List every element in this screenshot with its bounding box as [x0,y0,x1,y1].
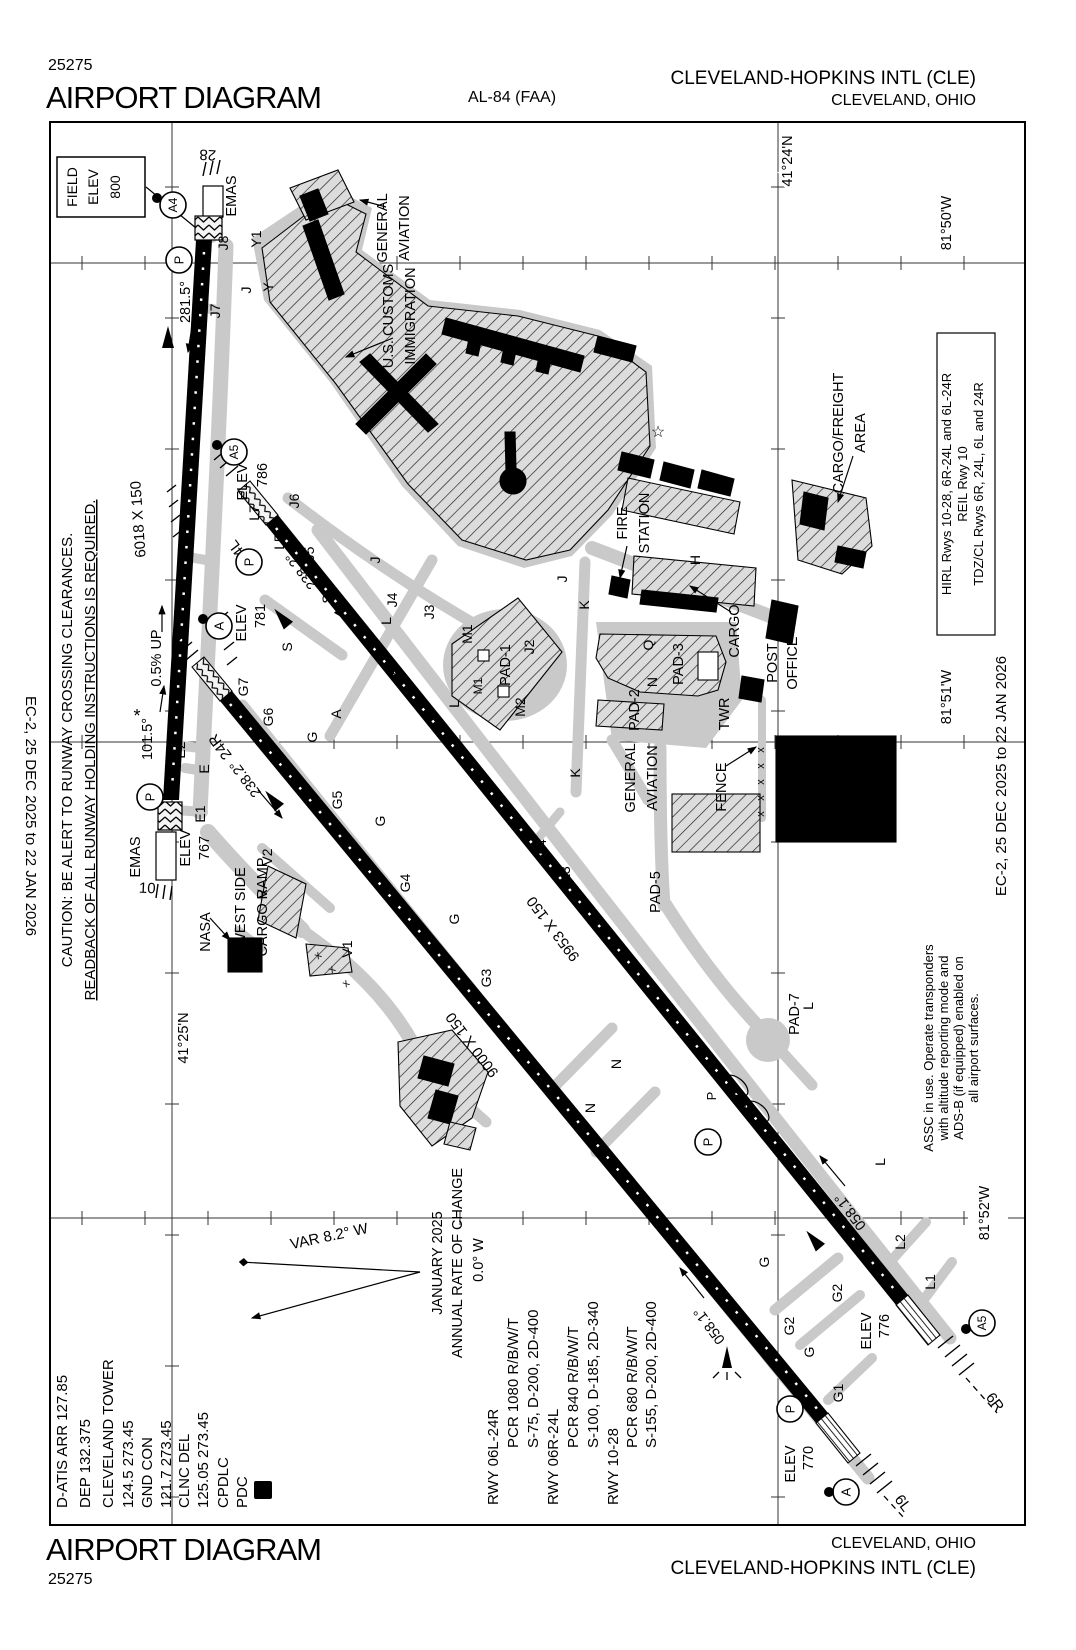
footer-airport-name: CLEVELAND-HOPKINS INTL (CLE) [671,1558,976,1579]
runway-data-line: PCR 1080 R/B/W/T [505,1318,522,1448]
map-label: 238.2° [227,757,265,800]
map-label: J7 [207,303,223,318]
map-label: x [755,747,767,753]
chart-id-bottom: 25275 [48,1571,93,1588]
map-label: V2 [259,848,275,865]
frequency-line: 124.5 273.45 [120,1420,137,1508]
map-label: PAD-1 [498,644,514,686]
hold-dot [152,193,162,203]
hold-circle-label: A5 [227,444,241,459]
map-label: J5 [301,546,317,561]
map-label: PAD-3 [671,643,687,685]
map-label: S [279,642,295,651]
map-label: E [196,764,212,773]
airport-diagram-map: D 28EMASJ8J7Y1JY281.5°6018 X 1500.5% UP1… [0,0,1076,1650]
map-label: J [554,576,570,583]
map-label: 81°52'W [977,1185,993,1240]
map-label: 281.5° [178,281,194,323]
map-label: J3 [421,604,437,619]
frequency-line: 121.7 273.45 [158,1420,175,1508]
runway-data-line: PCR 840 R/B/W/T [565,1326,582,1448]
hold-circle-label: P [172,256,187,265]
hold-dot [961,1324,971,1334]
map-label: 770 [801,1446,817,1470]
caution-line: CAUTION: BE ALERT TO RUNWAY CROSSING CLE… [59,533,76,968]
fire-station-building [609,576,630,598]
map-label: K [576,600,592,610]
frequency-line: GND CON [139,1437,156,1508]
hold-circle-label: P [143,793,158,802]
map-label: 786 [255,463,271,487]
map-label: POST [765,643,781,683]
left-margin-date: EC-2, 25 DEC 2025 to 22 JAN 2026 [22,696,39,936]
map-label: P [704,1092,719,1101]
page-title: AIRPORT DIAGRAM [46,80,321,115]
map-label: J2 [521,639,537,654]
map-label: ☆ [651,424,665,441]
magnetic-north-ray [252,1272,420,1318]
map-label: ELEV [859,1312,875,1349]
chart-footer: AIRPORT DIAGRAM 25275 CLEVELAND, OHIO CL… [46,1532,976,1588]
map-label: ANNUAL RATE OF CHANGE [450,1168,466,1358]
right-margin-date: EC-2, 25 DEC 2025 to 22 JAN 2026 [993,656,1010,896]
map-label: OFFICE [785,636,801,689]
map-label: A [384,666,400,676]
map-label: L1 [922,1274,938,1290]
map-label: 101.5° [140,718,156,760]
map-label: K [567,768,583,778]
map-label: 6018 X 150 [127,480,149,558]
footer-city: CLEVELAND, OHIO [831,1535,976,1552]
map-label: U.S. CUSTOMS [381,264,397,368]
emas-10 [156,832,176,880]
map-label: CARGO RAMP [255,857,271,956]
map-label: S [319,594,335,603]
frequency-line: CLNC DEL [176,1434,193,1508]
map-label: x [755,779,767,785]
map-label: STATION [637,493,653,554]
map-label: Q [640,639,656,650]
map-label: G [446,914,462,925]
frequency-line: PDC [234,1476,251,1508]
assc-note-line: with altitude reporting mode and [936,955,951,1141]
runway-data-line: S-155, D-200, 2D-400 [643,1301,660,1448]
map-label: J [238,287,254,294]
map-label: A [328,709,344,719]
map-label: JANUARY 2025 [430,1211,446,1314]
beacon-icon [713,1346,741,1380]
map-label: FENCE [714,762,730,811]
hold-circle-label: P [783,1405,798,1414]
runway-data-line: RWY 10-28 [605,1428,622,1505]
runway-data-line: S-75, D-200, 2D-400 [525,1310,542,1448]
map-label: J [367,557,383,564]
map-label: L5 [271,534,287,550]
true-north-ray [240,1262,420,1272]
map-label: G [801,1347,817,1358]
hold-circle-label: A [839,1487,854,1496]
map-label: 0.5% UP [149,629,165,686]
lighting-note-line: HIRL Rwys 10-28, 6R-24L and 6L-24R [939,373,954,595]
hold-dot [198,614,208,624]
map-label: 10 [138,880,156,898]
map-label: FIRE [615,506,631,539]
footer-title: AIRPORT DIAGRAM [46,1532,321,1567]
hold-circle-label: A5 [975,1315,989,1330]
map-label: 28 [199,146,217,164]
map-label: 776 [877,1314,893,1338]
field-elev-line: ELEV [85,168,101,204]
map-label: PAD-2 [627,689,643,731]
chart-header: 25275 AIRPORT DIAGRAM AL-84 (FAA) CLEVEL… [46,57,976,115]
terminal-buildings [262,170,650,560]
map-label: CARGO/FREIGHT [831,372,847,493]
hold-circle-label: A [212,621,227,630]
map-label: L [800,1002,816,1010]
hold-circle-label: P [242,558,257,567]
assc-note-line: ADS-B (if equipped) enabled on [951,956,966,1140]
runway-data-line: PCR 680 R/B/W/T [624,1326,641,1448]
procedure-id: AL-84 (FAA) [468,89,556,106]
large-building [776,736,896,842]
pdc-d-label: D [256,1485,271,1494]
map-label: GENERAL [375,193,391,262]
map-label: WEST SIDE [233,867,249,947]
frequency-line: 125.05 273.45 [195,1412,212,1508]
map-label: G [756,1257,772,1268]
map-label: 41°25'N [176,1012,192,1063]
map-label: 6L [891,1492,915,1516]
emas-28 [203,186,223,217]
map-label: M1 [459,624,475,644]
map-label: PAD-7 [787,993,803,1035]
runway-data-line: RWY 06L-24R [485,1409,502,1505]
airport-city: CLEVELAND, OHIO [831,92,976,109]
map-label: N [644,677,660,687]
map-label: AVIATION [397,195,413,261]
map-label: 81°50'W [939,195,955,250]
map-label: VAR 8.2° W [289,1220,371,1253]
map-label: PAD-5 [648,871,664,913]
map-label: G6 [260,707,276,726]
map-label: G [372,816,388,827]
map-label: N [608,1059,624,1069]
map-label: M2 [512,697,528,717]
map-label: M1 [471,677,485,694]
runway-data-line: S-100, D-185, 2D-340 [585,1301,602,1448]
map-label: G2 [829,1283,845,1302]
map-label: L [872,1158,888,1166]
map-label: E1 [192,805,208,822]
map-label: 781 [253,604,269,628]
map-label: E2 [172,741,188,758]
caution-line: READBACK OF ALL RUNWAY HOLDING INSTRUCTI… [82,500,99,1001]
map-label: J6 [286,493,302,508]
assc-note-line: ASSC in use. Operate transponders [921,944,936,1152]
map-label: L2 [892,1234,908,1250]
field-elev-line: 800 [107,175,123,199]
map-label: 0.0° W [471,1238,487,1282]
map-label: L [446,700,462,708]
field-elev-line: FIELD [64,167,80,207]
map-label: L3 [557,866,573,882]
frequency-line: D-ATIS ARR 127.85 [54,1375,71,1508]
map-label: Y [260,282,276,292]
frequency-line: CPDLC [215,1457,232,1508]
map-label: x [340,977,352,990]
map-label: L [378,617,394,625]
hold-circle-label: A4 [166,197,180,212]
map-label: ELEV [234,604,250,641]
frequency-line: DEP 132.375 [77,1419,94,1508]
airport-diagram-page: { "header": { "chart_id": "25275", "titl… [0,0,1076,1650]
map-label: EMAS [128,836,144,877]
map-label: G [304,732,320,743]
map-label: ELEV [783,1445,799,1482]
map-label: EMAS [224,175,240,216]
map-label: G1 [830,1383,846,1402]
map-label: L7 [246,505,262,521]
map-label: 81°51'W [939,669,955,724]
map-label: G3 [478,968,494,987]
map-label: G7 [235,677,251,696]
hold-dot [212,440,222,450]
map-label: J8 [215,235,231,250]
map-label: ELEV [235,463,251,500]
map-label: GENERAL [623,743,639,812]
map-label: V [254,889,270,899]
map-label: IMMIGRATION [403,267,419,364]
map-label: L4 [533,839,549,855]
map-label: H [687,555,703,565]
assc-note-line: all airport surfaces. [966,993,981,1103]
map-label: x [755,763,767,769]
map-label: 767 [197,836,213,860]
chart-id-top: 25275 [48,57,93,74]
map-label: G5 [329,790,345,809]
map-label: x [755,795,767,801]
map-label: J4 [384,592,400,607]
map-label: CARGO [727,604,743,657]
map-label: V1 [339,940,355,957]
map-label: 41°24'N [780,135,796,186]
map-label: * [133,706,140,726]
frequency-line: CLEVELAND TOWER [100,1359,117,1508]
runway-data-line: RWY 06R-24L [545,1409,562,1505]
map-label: AREA [853,413,869,453]
hold-circle-label: P [701,1138,716,1147]
map-label: ELEV [178,829,194,866]
map-label: G4 [397,873,413,892]
map-label: NASA [198,912,214,952]
tower-building [739,676,764,702]
map-label: Y1 [248,230,264,247]
map-label: AVIATION [645,745,661,811]
hold-dot [824,1487,834,1497]
lighting-note-line: TDZ/CL Rwys 6R, 24L, 6L and 24R [971,382,986,586]
map-label: TWR [717,697,733,730]
map-label: 6R [982,1390,1007,1416]
lighting-note-line: REIL Rwy 10 [955,446,970,521]
airport-name: CLEVELAND-HOPKINS INTL (CLE) [671,68,976,89]
map-label: G2 [781,1316,797,1335]
map-label: N [582,1103,598,1113]
map-label: x [755,811,767,817]
